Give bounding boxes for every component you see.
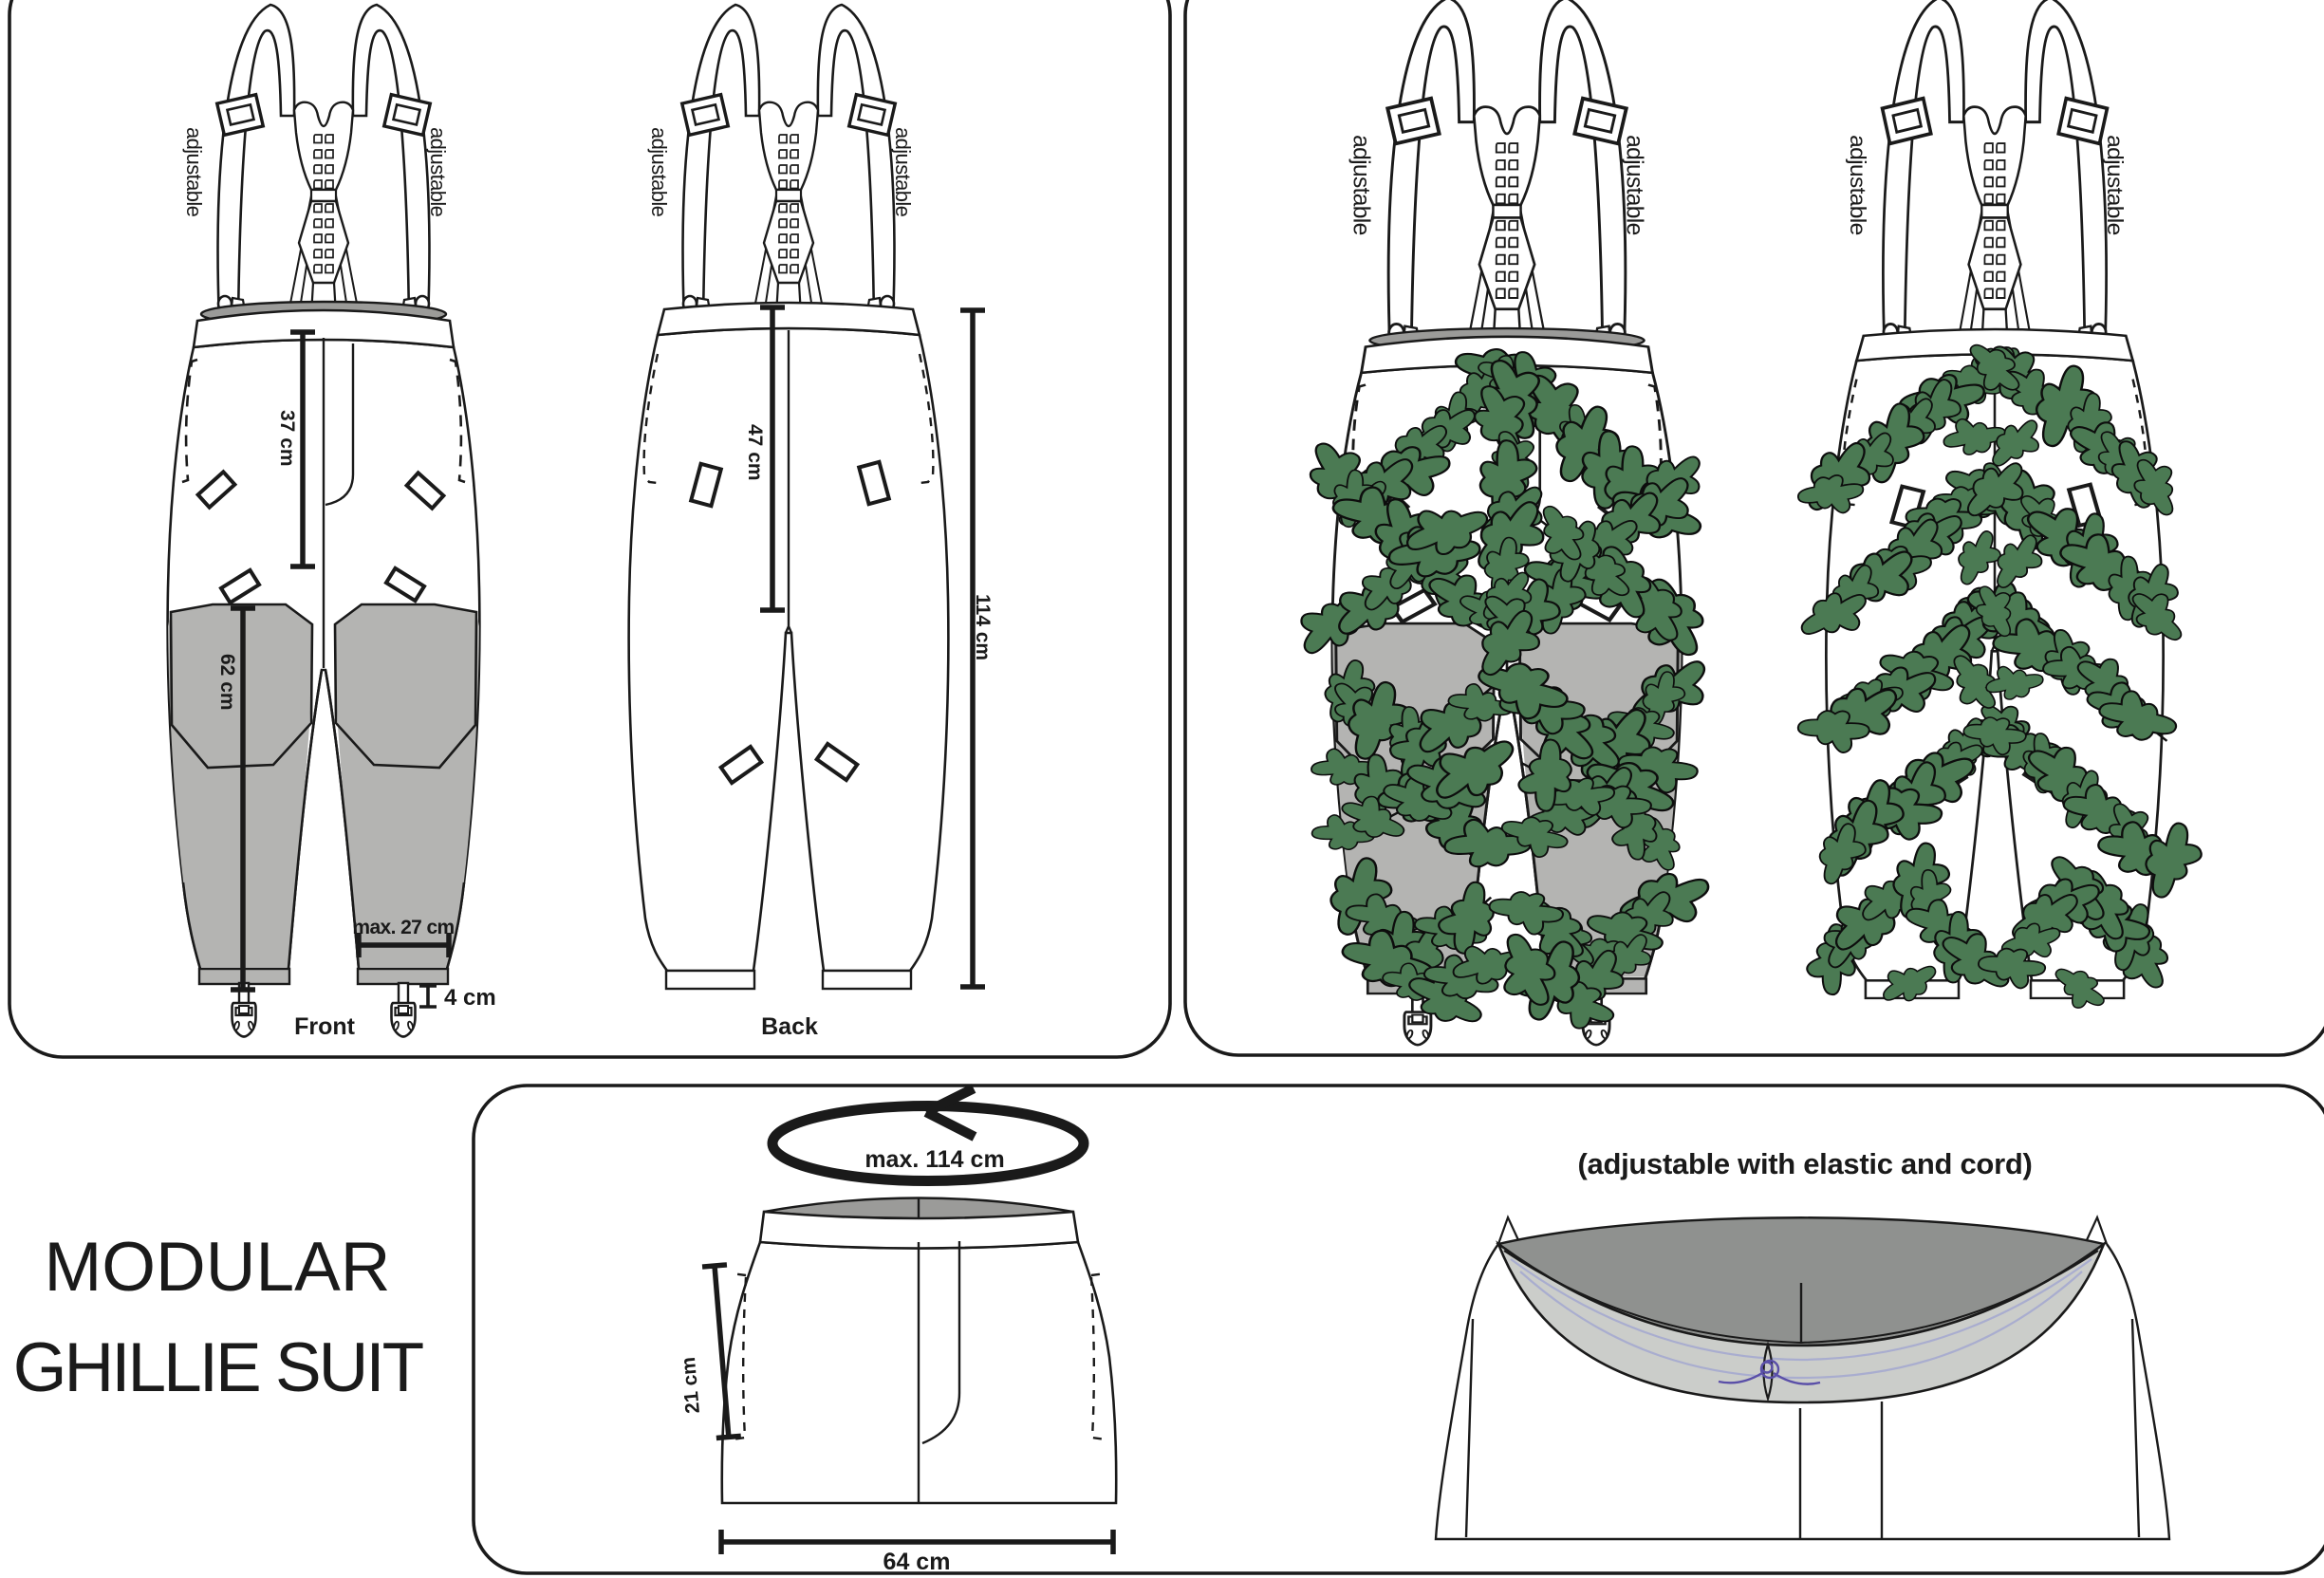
svg-text:max. 114 cm: max. 114 cm [865, 1146, 1004, 1173]
svg-text:(adjustable with elastic and c: (adjustable with elastic and cord) [1577, 1147, 2032, 1180]
svg-text:37 cm: 37 cm [276, 410, 298, 467]
svg-text:4 cm: 4 cm [444, 985, 496, 1011]
svg-text:adjustable: adjustable [1622, 135, 1647, 235]
svg-text:GHILLIE SUIT: GHILLIE SUIT [13, 1329, 423, 1406]
svg-text:adjustable: adjustable [891, 127, 915, 217]
svg-text:adjustable: adjustable [647, 127, 671, 217]
svg-text:62 cm: 62 cm [216, 654, 238, 711]
svg-text:adjustable: adjustable [182, 127, 206, 217]
svg-text:adjustable: adjustable [426, 127, 450, 217]
svg-text:Back: Back [761, 1013, 818, 1040]
svg-text:adjustable: adjustable [1348, 135, 1374, 235]
svg-text:114 cm: 114 cm [972, 594, 994, 660]
svg-text:adjustable: adjustable [2102, 135, 2127, 235]
svg-text:adjustable: adjustable [1845, 135, 1869, 235]
svg-text:64 cm: 64 cm [883, 1549, 951, 1575]
svg-text:MODULAR: MODULAR [44, 1229, 390, 1306]
svg-text:Front: Front [294, 1013, 356, 1040]
svg-text:max. 27 cm: max. 27 cm [352, 917, 454, 938]
svg-text:47 cm: 47 cm [744, 424, 766, 481]
